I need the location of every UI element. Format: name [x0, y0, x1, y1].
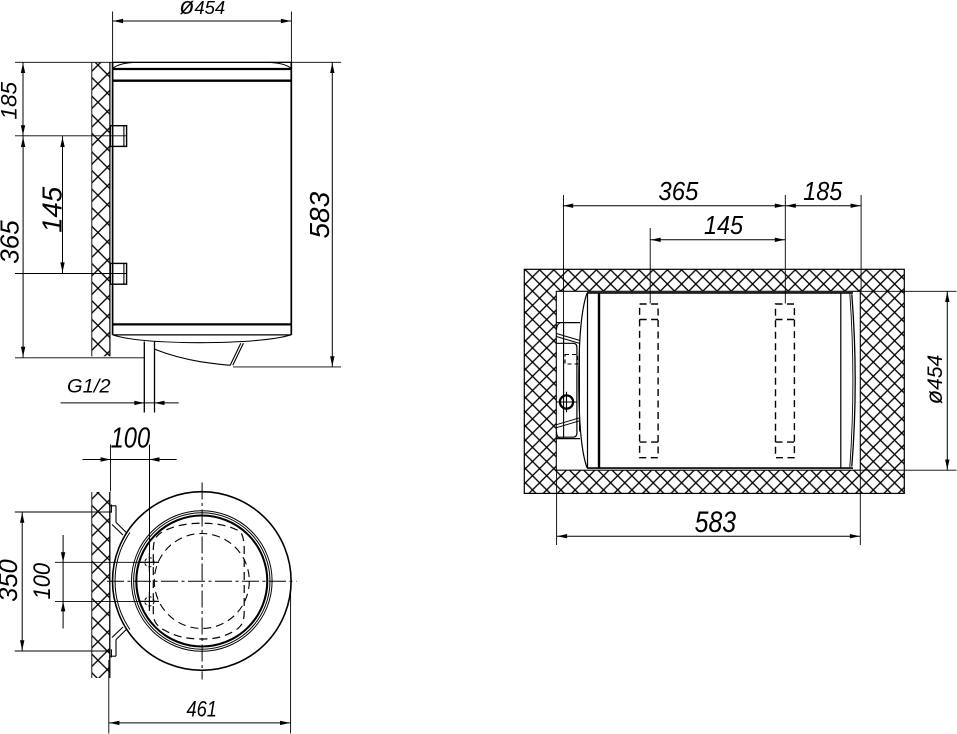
- svg-text:583: 583: [695, 506, 737, 539]
- svg-text:100: 100: [111, 423, 151, 455]
- svg-text:365: 365: [0, 220, 24, 264]
- svg-text:583: 583: [304, 191, 335, 238]
- svg-text:ø454: ø454: [179, 0, 225, 20]
- svg-text:G1/2: G1/2: [67, 376, 111, 398]
- svg-text:350: 350: [0, 559, 23, 602]
- svg-text:365: 365: [658, 176, 698, 206]
- svg-text:185: 185: [803, 176, 842, 206]
- svg-text:145: 145: [36, 186, 67, 233]
- svg-text:461: 461: [186, 696, 217, 721]
- svg-text:100: 100: [29, 563, 56, 600]
- svg-text:145: 145: [704, 210, 743, 240]
- svg-text:ø454: ø454: [921, 355, 947, 404]
- svg-text:185: 185: [0, 82, 22, 120]
